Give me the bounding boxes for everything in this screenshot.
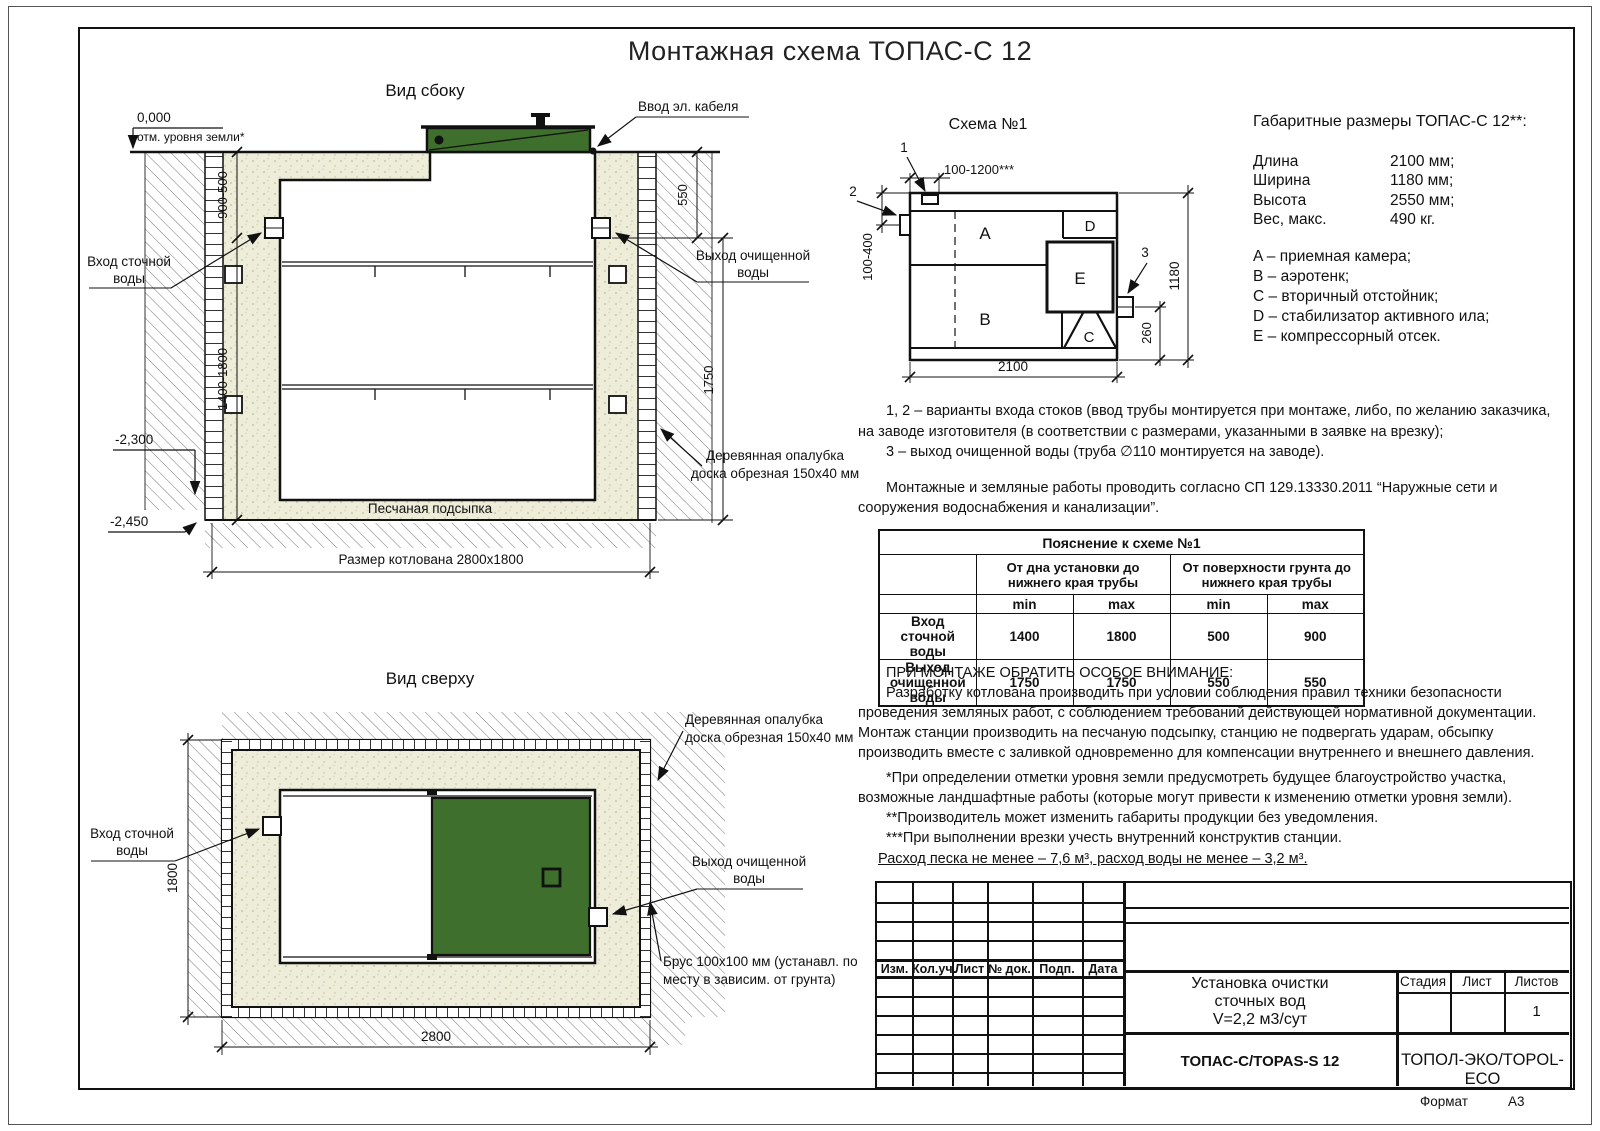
dim-2100: 2100 — [998, 359, 1028, 374]
svg-text:отм. уровня земли*: отм. уровня земли* — [137, 130, 245, 144]
svg-text:месту в зависим. от грунта): месту в зависим. от грунта) — [663, 972, 835, 987]
attention-title: ПРИ МОНТАЖЕ ОБРАТИТЬ ОСОБОЕ ВНИМАНИЕ: — [858, 663, 1557, 683]
pit-size-dim: Размер котлована 2800x1800 — [339, 552, 524, 567]
model-name: ТОПАС-С/TOPAS-S 12 — [1124, 1053, 1396, 1070]
svg-text:воды: воды — [737, 265, 769, 280]
side-view-label: Вид сбоку — [385, 81, 465, 100]
top-view-drawing: Вид сверху — [85, 665, 865, 1085]
sheet-title: Монтажная схема ТОПАС-С 12 — [500, 36, 1160, 67]
rev-col-podp: Подп. — [1032, 962, 1082, 976]
format-label: Формат — [1420, 1094, 1468, 1109]
svg-text:0,000: 0,000 — [137, 110, 171, 125]
schema1-label: Схема №1 — [949, 116, 1028, 133]
note-outlet: 3 – выход очищенной воды (труба ∅110 мон… — [858, 442, 1554, 463]
overall-dimensions-block: Габаритные размеры ТОПАС-С 12**: Длина21… — [1253, 112, 1563, 347]
tank-body — [280, 152, 595, 500]
footnotes-block: *При определении отметки уровня земли пр… — [858, 768, 1557, 848]
dim-100-400: 100-400 — [860, 233, 875, 281]
green-lid — [421, 113, 595, 152]
formwork-label: Деревянная опалубка — [685, 712, 824, 727]
compartment-legend: A – приемная камера; B – аэротенк; C – в… — [1253, 247, 1563, 347]
dim-2800: 2800 — [421, 1029, 451, 1044]
outlet-label: Выход очищенной — [692, 854, 806, 869]
inlet-label: Вход сточной — [87, 254, 171, 269]
outlet-port — [589, 908, 607, 926]
dim-row: Длина2100 мм; — [1253, 152, 1563, 172]
rev-col-izm: Изм. — [877, 962, 912, 976]
dim-row: Вес, макс.490 кг. — [1253, 210, 1563, 230]
note-sp: Монтажные и земляные работы проводить со… — [858, 478, 1554, 519]
svg-text:2: 2 — [849, 184, 857, 199]
compartment-d: D — [1085, 218, 1096, 235]
dim-1750: 1750 — [701, 366, 716, 395]
schema-port-2 — [900, 215, 910, 235]
dim-550: 550 — [675, 184, 690, 206]
top-view-label: Вид сверху — [386, 669, 475, 688]
rev-col-ndok: № док. — [987, 962, 1032, 976]
svg-text:воды: воды — [116, 843, 148, 858]
formwork-label: Деревянная опалубка — [706, 448, 845, 463]
tank-plan — [263, 789, 607, 963]
table-row: Вход сточной воды 1400 1800 500 900 — [879, 614, 1364, 660]
svg-text:доска обрезная 150x40 мм: доска обрезная 150x40 мм — [685, 730, 853, 745]
dim-row: Высота2550 мм; — [1253, 191, 1563, 211]
svg-text:3: 3 — [1141, 245, 1149, 260]
cable-entry-label: Ввод эл. кабеля — [638, 99, 738, 114]
dim-1400-1800: 1400-1800 — [215, 348, 230, 410]
sheet-label: Лист — [1450, 974, 1504, 989]
vent-pipe — [536, 116, 545, 128]
beam-label: Брус 100x100 мм (устанавл. по — [663, 954, 858, 969]
sheets-value: 1 — [1504, 1003, 1569, 1020]
dim-1180: 1180 — [1167, 261, 1182, 290]
consumption-note: Расход песка не менее – 7,6 м³, расход в… — [878, 851, 1538, 867]
table-title: Пояснение к схеме №1 — [879, 530, 1364, 555]
footnote-2: **Производитель может изменить габариты … — [858, 808, 1557, 828]
attention-block: ПРИ МОНТАЖЕ ОБРАТИТЬ ОСОБОЕ ВНИМАНИЕ: Ра… — [858, 663, 1557, 763]
rev-col-data: Дата — [1082, 962, 1124, 976]
rev-col-list: Лист — [952, 962, 987, 976]
attention-body: Разработку котлована производить при усл… — [858, 683, 1557, 763]
compartment-b: B — [979, 310, 990, 329]
svg-text:-2,450: -2,450 — [110, 514, 148, 529]
svg-text:воды: воды — [113, 271, 145, 286]
sand-bedding-label: Песчаная подсыпка — [368, 501, 493, 516]
svg-text:воды: воды — [733, 871, 765, 886]
footnote-3: ***При выполнении врезки учесть внутренн… — [858, 828, 1557, 848]
format-value: A3 — [1508, 1094, 1525, 1109]
dim-100-1200: 100-1200*** — [944, 162, 1014, 177]
dim-260: 260 — [1139, 322, 1154, 344]
note-variants: 1, 2 – варианты входа стоков (ввод трубы… — [858, 401, 1554, 442]
inlet-label: Вход сточной — [90, 826, 174, 841]
schema1-drawing: Схема №1 A B C D E 1 2 3 — [820, 105, 1250, 395]
schema-port-1 — [922, 195, 938, 204]
footnote-1: *При определении отметки уровня земли пр… — [858, 768, 1557, 808]
side-view-drawing: Вид сбоку — [85, 80, 865, 595]
title-block: Изм. Кол.уч. Лист № док. Подп. Дата Уста… — [875, 881, 1572, 1089]
lid-hinge — [427, 954, 437, 960]
stage-label: Стадия — [1396, 974, 1450, 989]
compartment-a: A — [979, 224, 991, 243]
drawing-sheet: Монтажная схема ТОПАС-С 12 Вид сбоку — [0, 0, 1600, 1131]
svg-text:доска обрезная 150x40 мм: доска обрезная 150x40 мм — [691, 466, 859, 481]
svg-text:-2,300: -2,300 — [115, 432, 153, 447]
compartment-c: C — [1084, 329, 1095, 346]
dim-1800: 1800 — [165, 863, 180, 893]
lid-hinge — [427, 789, 437, 795]
dim-row: Ширина1180 мм; — [1253, 171, 1563, 191]
overall-title: Габаритные размеры ТОПАС-С 12**: — [1253, 112, 1563, 132]
sheets-label: Листов — [1504, 974, 1569, 989]
svg-text:1: 1 — [900, 140, 908, 155]
compartment-e: E — [1074, 269, 1085, 288]
notes-block: 1, 2 – варианты входа стоков (ввод трубы… — [858, 401, 1554, 519]
lid-handle — [435, 136, 444, 145]
inlet-port — [263, 817, 281, 835]
document-name: Установка очистки сточных вод V=2,2 м3/с… — [1124, 975, 1396, 1029]
dim-900-500: 900-500 — [215, 171, 230, 219]
green-lid — [432, 798, 590, 955]
outlet-label: Выход очищенной — [696, 248, 810, 263]
company-name: ТОПОЛ-ЭКО/TOPOL-ECO — [1396, 1051, 1569, 1089]
rev-col-koluch: Кол.уч. — [912, 962, 952, 976]
